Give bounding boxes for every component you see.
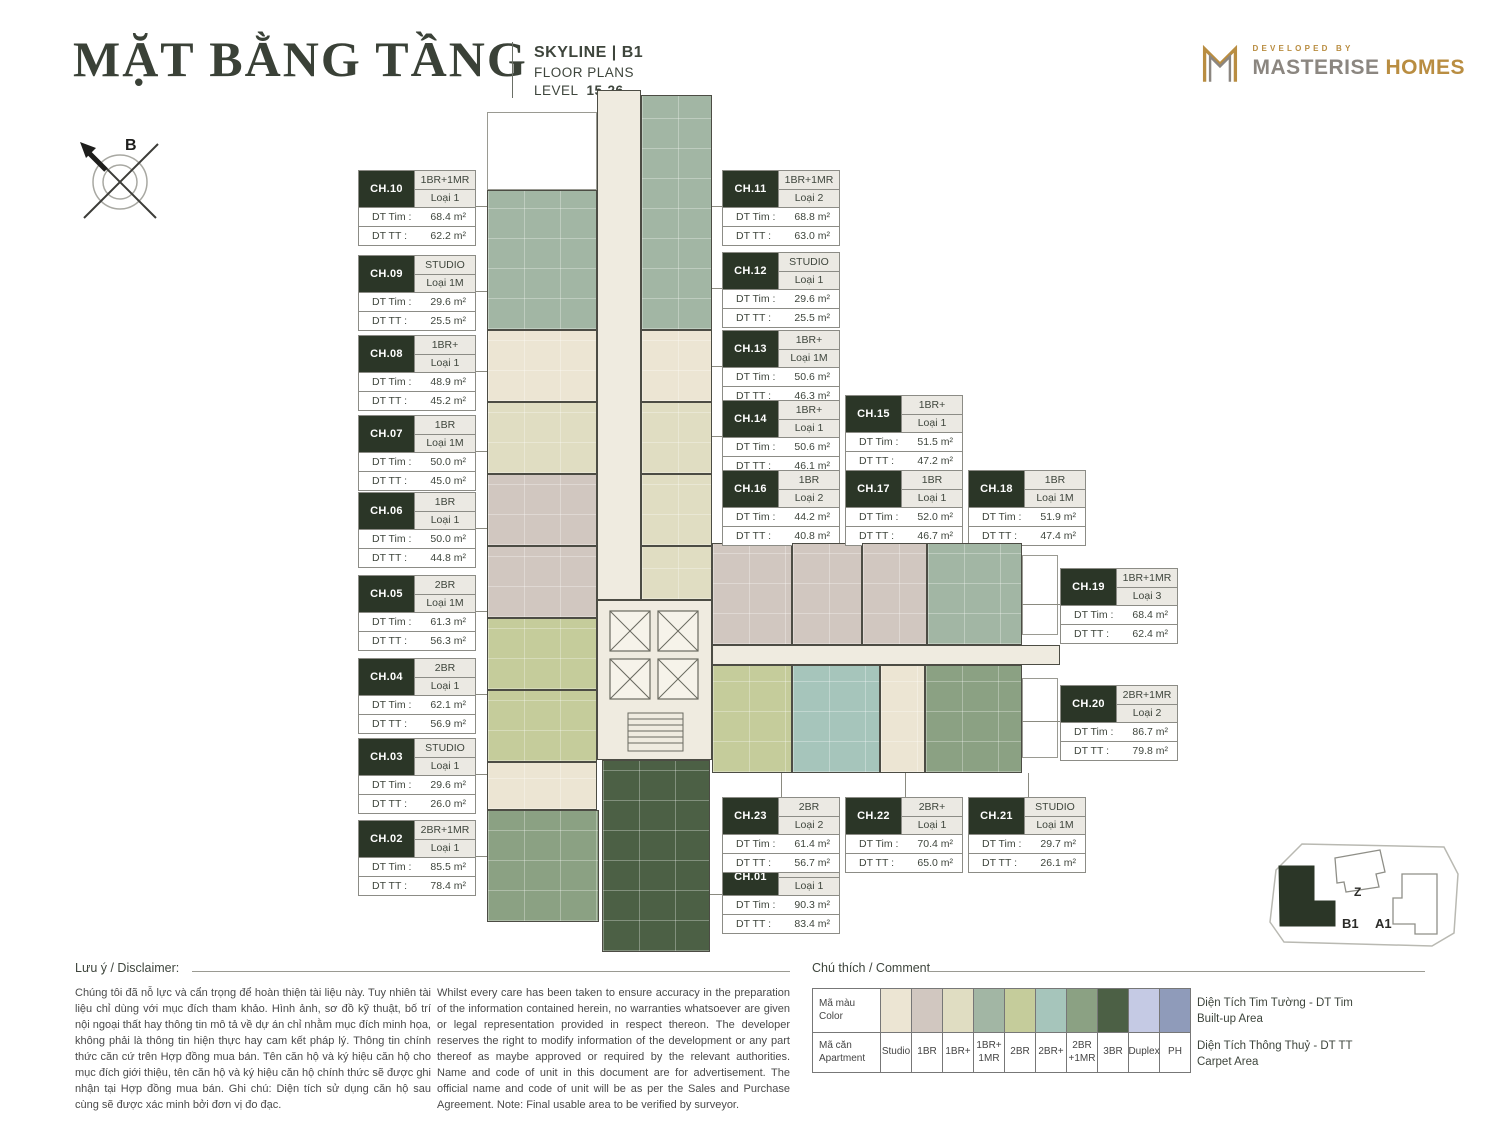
legend-swatch-2br+1mr [1067, 989, 1098, 1033]
unit-carpet-row: DT TT : 25.5 m² [359, 312, 475, 330]
dt-tim-value: 61.4 m² [794, 838, 830, 850]
legend-type-label: 2BR+ [1036, 1033, 1067, 1073]
dt-tim-value: 70.4 m² [917, 838, 953, 850]
connector-line [476, 206, 487, 207]
dt-tt-label: DT TT : [1074, 628, 1109, 640]
dt-tt-value: 40.8 m² [794, 530, 830, 542]
unit-builtup-row: DT Tim : 61.3 m² [359, 613, 475, 632]
dt-tim-label: DT Tim : [372, 211, 411, 223]
dt-tim-value: 29.6 m² [794, 293, 830, 305]
unit-type: 1BR+ [779, 401, 839, 420]
legend-note-builtup-vi: Diện Tích Tim Tường - DT Tim [1197, 995, 1457, 1011]
legend-type-label: Duplex [1129, 1033, 1160, 1073]
dt-tt-value: 25.5 m² [794, 312, 830, 324]
unit-box-header: CH.12 STUDIO Loại 1 [723, 253, 839, 290]
dt-tt-label: DT TT : [372, 635, 407, 647]
balcony-right-1 [1022, 555, 1058, 635]
dt-tim-value: 68.4 m² [430, 211, 466, 223]
dt-tt-label: DT TT : [982, 857, 1017, 869]
dt-tt-value: 44.8 m² [430, 552, 466, 564]
legend-type-label: 2BR +1MR [1067, 1033, 1098, 1073]
legend-heading: Chú thích / Comment [812, 961, 930, 975]
dt-tim-value: 29.6 m² [430, 296, 466, 308]
dt-tim-value: 68.4 m² [1132, 609, 1168, 621]
plan-unit-ch16 [712, 543, 792, 645]
unit-type-cell: 2BR+ Loại 1 [901, 798, 962, 834]
unit-type-cell: 1BR+ Loại 1 [414, 336, 475, 372]
plan-unit-ch04 [487, 690, 597, 762]
disclaimer-rule [192, 971, 790, 972]
legend-type-label: PH [1160, 1033, 1191, 1073]
unit-box-header: CH.18 1BR Loại 1M [969, 471, 1085, 508]
dt-tt-label: DT TT : [736, 857, 771, 869]
connector-line [1022, 604, 1060, 605]
unit-variant: Loại 1M [1025, 817, 1085, 835]
dt-tim-label: DT Tim : [859, 838, 898, 850]
unit-builtup-row: DT Tim : 50.0 m² [359, 530, 475, 549]
unit-type-cell: STUDIO Loại 1M [1024, 798, 1085, 834]
unit-code: CH.22 [846, 798, 901, 834]
unit-code: CH.06 [359, 493, 414, 529]
unit-variant: Loại 1 [779, 420, 839, 438]
disclaimer-text-en: Whilst every care has been taken to ensu… [437, 986, 790, 1114]
unit-carpet-row: DT TT : 26.0 m² [359, 795, 475, 813]
plan-unit-ch03 [487, 762, 597, 810]
dt-tt-label: DT TT : [372, 880, 407, 892]
connector-line [712, 366, 722, 367]
key-plan: B1 Z A1 [1262, 834, 1467, 956]
dt-tim-value: 52.0 m² [917, 511, 953, 523]
unit-type-cell: 1BR+1MR Loại 1 [414, 171, 475, 207]
unit-type-cell: 1BR+ Loại 1 [901, 396, 962, 432]
legend-type-label: 2BR [1005, 1033, 1036, 1073]
plan-unit-ch23 [712, 665, 792, 773]
connector-line [476, 694, 487, 695]
dt-tt-label: DT TT : [859, 455, 894, 467]
legend-type-label: 1BR+ [943, 1033, 974, 1073]
connector-line [712, 288, 722, 289]
unit-builtup-row: DT Tim : 51.5 m² [846, 433, 962, 452]
unit-carpet-row: DT TT : 45.0 m² [359, 472, 475, 490]
unit-type-cell: 1BR Loại 1M [1024, 471, 1085, 507]
unit-builtup-row: DT Tim : 50.0 m² [359, 453, 475, 472]
unit-box-header: CH.11 1BR+1MR Loại 2 [723, 171, 839, 208]
legend-swatch-2br [1005, 989, 1036, 1033]
unit-code: CH.18 [969, 471, 1024, 507]
unit-builtup-row: DT Tim : 70.4 m² [846, 835, 962, 854]
unit-variant: Loại 2 [779, 817, 839, 835]
dt-tim-value: 50.0 m² [430, 456, 466, 468]
dt-tim-label: DT Tim : [372, 616, 411, 628]
unit-type: STUDIO [779, 253, 839, 272]
plan-unit-ch10 [487, 190, 597, 330]
legend-note-carpet-vi: Diện Tích Thông Thuỷ - DT TT [1197, 1038, 1457, 1054]
connector-line [712, 206, 722, 207]
unit-type-cell: 1BR Loại 1 [414, 493, 475, 529]
unit-type: 1BR [415, 493, 475, 512]
unit-builtup-row: DT Tim : 62.1 m² [359, 696, 475, 715]
dt-tim-value: 85.5 m² [430, 861, 466, 873]
unit-type-cell: 2BR Loại 1M [414, 576, 475, 612]
unit-code: CH.13 [723, 331, 778, 367]
key-plan-z-label: Z [1354, 885, 1361, 899]
unit-builtup-row: DT Tim : 51.9 m² [969, 508, 1085, 527]
unit-carpet-row: DT TT : 26.1 m² [969, 854, 1085, 872]
dt-tim-label: DT Tim : [736, 371, 775, 383]
legend-swatch-1br+1mr [974, 989, 1005, 1033]
unit-type-cell: 2BR Loại 2 [778, 798, 839, 834]
unit-type-cell: 1BR Loại 1 [901, 471, 962, 507]
dt-tt-value: 56.7 m² [794, 857, 830, 869]
unit-carpet-row: DT TT : 56.7 m² [723, 854, 839, 872]
dt-tim-label: DT Tim : [736, 441, 775, 453]
dt-tt-value: 26.0 m² [430, 798, 466, 810]
unit-box-header: CH.17 1BR Loại 1 [846, 471, 962, 508]
plan-unit-ch19 [927, 543, 1022, 645]
unit-code: CH.04 [359, 659, 414, 695]
floor-plan: CH.01 3BR Loại 1 DT Tim : 90.3 m² DT TT … [0, 0, 1500, 1125]
plan-unit-ch12 [641, 330, 712, 402]
dt-tim-label: DT Tim : [372, 533, 411, 545]
plan-unit-ch14 [641, 474, 712, 546]
dt-tt-label: DT TT : [372, 718, 407, 730]
connector-line [1028, 773, 1029, 797]
unit-builtup-row: DT Tim : 61.4 m² [723, 835, 839, 854]
dt-tim-label: DT Tim : [736, 838, 775, 850]
unit-builtup-row: DT Tim : 48.9 m² [359, 373, 475, 392]
unit-code: CH.12 [723, 253, 778, 289]
unit-box-header: CH.09 STUDIO Loại 1M [359, 256, 475, 293]
legend-type-label: 3BR [1098, 1033, 1129, 1073]
unit-box-header: CH.19 1BR+1MR Loại 3 [1061, 569, 1177, 606]
unit-code: CH.10 [359, 171, 414, 207]
dt-tt-label: DT TT : [372, 475, 407, 487]
dt-tim-value: 29.7 m² [1040, 838, 1076, 850]
unit-box-header: CH.21 STUDIO Loại 1M [969, 798, 1085, 835]
dt-tim-value: 62.1 m² [430, 699, 466, 711]
legend-note-builtup-en: Built-up Area [1197, 1011, 1457, 1027]
unit-type-cell: 1BR Loại 1M [414, 416, 475, 452]
unit-builtup-row: DT Tim : 50.6 m² [723, 438, 839, 457]
unit-type-cell: STUDIO Loại 1 [778, 253, 839, 289]
dt-tim-label: DT Tim : [1074, 609, 1113, 621]
unit-label-box-ch12: CH.12 STUDIO Loại 1 DT Tim : 29.6 m² DT … [722, 252, 840, 328]
unit-variant: Loại 3 [1117, 588, 1177, 606]
unit-carpet-row: DT TT : 56.9 m² [359, 715, 475, 733]
unit-code: CH.19 [1061, 569, 1116, 605]
plan-unit-ch02 [487, 810, 599, 922]
dt-tt-label: DT TT : [736, 530, 771, 542]
dt-tim-label: DT Tim : [859, 511, 898, 523]
dt-tim-value: 50.6 m² [794, 371, 830, 383]
unit-variant: Loại 1M [1025, 490, 1085, 508]
unit-code: CH.08 [359, 336, 414, 372]
unit-label-box-ch03: CH.03 STUDIO Loại 1 DT Tim : 29.6 m² DT … [358, 738, 476, 814]
unit-builtup-row: DT Tim : 86.7 m² [1061, 723, 1177, 742]
unit-builtup-row: DT Tim : 29.7 m² [969, 835, 1085, 854]
unit-variant: Loại 2 [779, 490, 839, 508]
unit-builtup-row: DT Tim : 50.6 m² [723, 368, 839, 387]
unit-type: 1BR [415, 416, 475, 435]
dt-tim-label: DT Tim : [736, 211, 775, 223]
dt-tim-label: DT Tim : [372, 376, 411, 388]
dt-tim-value: 50.0 m² [430, 533, 466, 545]
unit-label-box-ch23: CH.23 2BR Loại 2 DT Tim : 61.4 m² DT TT … [722, 797, 840, 873]
unit-builtup-row: DT Tim : 68.8 m² [723, 208, 839, 227]
unit-variant: Loại 1M [415, 595, 475, 613]
unit-type-cell: 2BR+1MR Loại 2 [1116, 686, 1177, 722]
floorplan-page: MẶT BẰNG TẦNG SKYLINE | B1 FLOOR PLANS L… [0, 0, 1500, 1125]
unit-variant: Loại 1 [415, 840, 475, 858]
dt-tim-label: DT Tim : [1074, 726, 1113, 738]
unit-carpet-row: DT TT : 65.0 m² [846, 854, 962, 872]
dt-tt-label: DT TT : [372, 315, 407, 327]
unit-type-cell: STUDIO Loại 1 [414, 739, 475, 775]
dt-tim-label: DT Tim : [372, 699, 411, 711]
dt-tt-label: DT TT : [859, 530, 894, 542]
unit-type: 2BR [415, 659, 475, 678]
unit-label-box-ch14: CH.14 1BR+ Loại 1 DT Tim : 50.6 m² DT TT… [722, 400, 840, 476]
dt-tim-value: 61.3 m² [430, 616, 466, 628]
unit-label-box-ch11: CH.11 1BR+1MR Loại 2 DT Tim : 68.8 m² DT… [722, 170, 840, 246]
connector-line [781, 773, 782, 797]
unit-carpet-row: DT TT : 63.0 m² [723, 227, 839, 245]
dt-tim-label: DT Tim : [982, 511, 1021, 523]
legend-note-carpet: Diện Tích Thông Thuỷ - DT TT Carpet Area [1197, 1038, 1457, 1070]
unit-builtup-row: DT Tim : 29.6 m² [359, 776, 475, 795]
unit-type: 1BR+1MR [415, 171, 475, 190]
unit-builtup-row: DT Tim : 52.0 m² [846, 508, 962, 527]
unit-label-box-ch20: CH.20 2BR+1MR Loại 2 DT Tim : 86.7 m² DT… [1060, 685, 1178, 761]
dt-tt-value: 46.7 m² [917, 530, 953, 542]
unit-box-header: CH.02 2BR+1MR Loại 1 [359, 821, 475, 858]
plan-unit-ch18 [862, 543, 927, 645]
unit-carpet-row: DT TT : 79.8 m² [1061, 742, 1177, 760]
connector-line [476, 856, 487, 857]
unit-carpet-row: DT TT : 25.5 m² [723, 309, 839, 327]
plan-unit-ch15 [641, 546, 712, 600]
dt-tt-value: 62.2 m² [430, 230, 466, 242]
unit-box-header: CH.16 1BR Loại 2 [723, 471, 839, 508]
unit-label-box-ch08: CH.08 1BR+ Loại 1 DT Tim : 48.9 m² DT TT… [358, 335, 476, 411]
connector-line [476, 774, 487, 775]
unit-box-header: CH.10 1BR+1MR Loại 1 [359, 171, 475, 208]
unit-box-header: CH.04 2BR Loại 1 [359, 659, 475, 696]
unit-code: CH.14 [723, 401, 778, 437]
unit-type-cell: 2BR+1MR Loại 1 [414, 821, 475, 857]
plan-unit-ch21 [880, 665, 925, 773]
unit-variant: Loại 1 [415, 190, 475, 208]
unit-box-header: CH.22 2BR+ Loại 1 [846, 798, 962, 835]
elevator-core [597, 600, 712, 760]
dt-tim-label: DT Tim : [372, 779, 411, 791]
legend-note-builtup: Diện Tích Tim Tường - DT Tim Built-up Ar… [1197, 995, 1457, 1027]
unit-box-header: CH.06 1BR Loại 1 [359, 493, 475, 530]
unit-type: 2BR+1MR [415, 821, 475, 840]
unit-carpet-row: DT TT : 78.4 m² [359, 877, 475, 895]
dt-tt-label: DT TT : [372, 230, 407, 242]
unit-box-header: CH.03 STUDIO Loại 1 [359, 739, 475, 776]
connector-line [476, 611, 487, 612]
unit-code: CH.16 [723, 471, 778, 507]
unit-type: STUDIO [1025, 798, 1085, 817]
unit-code: CH.20 [1061, 686, 1116, 722]
dt-tt-label: DT TT : [736, 312, 771, 324]
unit-code: CH.09 [359, 256, 414, 292]
unit-variant: Loại 1 [415, 678, 475, 696]
unit-label-box-ch05: CH.05 2BR Loại 1M DT Tim : 61.3 m² DT TT… [358, 575, 476, 651]
dt-tt-label: DT TT : [1074, 745, 1109, 757]
dt-tt-value: 62.4 m² [1132, 628, 1168, 640]
unit-box-header: CH.15 1BR+ Loại 1 [846, 396, 962, 433]
unit-box-header: CH.20 2BR+1MR Loại 2 [1061, 686, 1177, 723]
dt-tt-value: 25.5 m² [430, 315, 466, 327]
connector-line [712, 436, 722, 437]
dt-tt-value: 83.4 m² [794, 918, 830, 930]
dt-tt-value: 65.0 m² [917, 857, 953, 869]
unit-code: CH.02 [359, 821, 414, 857]
connector-line [476, 528, 487, 529]
unit-label-box-ch04: CH.04 2BR Loại 1 DT Tim : 62.1 m² DT TT … [358, 658, 476, 734]
plan-unit-ch11 [641, 95, 712, 330]
unit-label-box-ch07: CH.07 1BR Loại 1M DT Tim : 50.0 m² DT TT… [358, 415, 476, 491]
unit-carpet-row: DT TT : 44.8 m² [359, 549, 475, 567]
connector-line [476, 291, 487, 292]
dt-tim-value: 44.2 m² [794, 511, 830, 523]
unit-label-box-ch02: CH.02 2BR+1MR Loại 1 DT Tim : 85.5 m² DT… [358, 820, 476, 896]
dt-tt-value: 63.0 m² [794, 230, 830, 242]
dt-tt-value: 47.4 m² [1040, 530, 1076, 542]
legend-note-carpet-en: Carpet Area [1197, 1054, 1457, 1070]
unit-box-header: CH.08 1BR+ Loại 1 [359, 336, 475, 373]
legend-swatch-1br [912, 989, 943, 1033]
dt-tim-label: DT Tim : [736, 899, 775, 911]
unit-builtup-row: DT Tim : 29.6 m² [359, 293, 475, 312]
unit-label-box-ch22: CH.22 2BR+ Loại 1 DT Tim : 70.4 m² DT TT… [845, 797, 963, 873]
legend-type-label: 1BR+ 1MR [974, 1033, 1005, 1073]
unit-type: 1BR+ [779, 331, 839, 350]
unit-label-box-ch06: CH.06 1BR Loại 1 DT Tim : 50.0 m² DT TT … [358, 492, 476, 568]
unit-code: CH.21 [969, 798, 1024, 834]
unit-type-cell: 1BR+1MR Loại 3 [1116, 569, 1177, 605]
unit-label-box-ch10: CH.10 1BR+1MR Loại 1 DT Tim : 68.4 m² DT… [358, 170, 476, 246]
connector-line [476, 451, 487, 452]
unit-box-header: CH.23 2BR Loại 2 [723, 798, 839, 835]
dt-tt-value: 26.1 m² [1040, 857, 1076, 869]
unit-variant: Loại 1 [779, 272, 839, 290]
unit-builtup-row: DT Tim : 68.4 m² [359, 208, 475, 227]
legend-type-label: 1BR [912, 1033, 943, 1073]
unit-variant: Loại 1 [902, 490, 962, 508]
unit-type-cell: 1BR+ Loại 1 [778, 401, 839, 437]
plan-unit-ch01 [602, 760, 710, 952]
unit-type: 1BR+ [902, 396, 962, 415]
unit-label-box-ch21: CH.21 STUDIO Loại 1M DT Tim : 29.7 m² DT… [968, 797, 1086, 873]
unit-builtup-row: DT Tim : 29.6 m² [723, 290, 839, 309]
dt-tt-label: DT TT : [372, 798, 407, 810]
unit-variant: Loại 2 [779, 190, 839, 208]
plan-unit-ch05 [487, 618, 597, 690]
unit-type: 2BR [415, 576, 475, 595]
dt-tim-value: 86.7 m² [1132, 726, 1168, 738]
dt-tim-label: DT Tim : [372, 861, 411, 873]
legend-swatch-2br+ [1036, 989, 1067, 1033]
unit-type-cell: 2BR Loại 1 [414, 659, 475, 695]
dt-tim-value: 48.9 m² [430, 376, 466, 388]
unit-variant: Loại 1 [902, 415, 962, 433]
legend-rule [928, 971, 1425, 972]
dt-tt-value: 56.3 m² [430, 635, 466, 647]
unit-variant: Loại 1 [415, 355, 475, 373]
unit-code: CH.07 [359, 416, 414, 452]
unit-label-box-ch13: CH.13 1BR+ Loại 1M DT Tim : 50.6 m² DT T… [722, 330, 840, 406]
connector-line [476, 371, 487, 372]
unit-type-cell: 1BR Loại 2 [778, 471, 839, 507]
unit-label-box-ch15: CH.15 1BR+ Loại 1 DT Tim : 51.5 m² DT TT… [845, 395, 963, 471]
dt-tim-label: DT Tim : [736, 511, 775, 523]
dt-tt-label: DT TT : [736, 918, 771, 930]
dt-tim-label: DT Tim : [372, 296, 411, 308]
dt-tt-value: 45.0 m² [430, 475, 466, 487]
dt-tim-label: DT Tim : [859, 436, 898, 448]
plan-unit-ch13 [641, 402, 712, 474]
connector-line [1022, 721, 1060, 722]
unit-carpet-row: DT TT : 56.3 m² [359, 632, 475, 650]
dt-tt-value: 56.9 m² [430, 718, 466, 730]
unit-box-header: CH.05 2BR Loại 1M [359, 576, 475, 613]
plan-unit-ch17 [792, 543, 862, 645]
legend-swatch-1br+ [943, 989, 974, 1033]
dt-tim-label: DT Tim : [982, 838, 1021, 850]
disclaimer-heading: Lưu ý / Disclaimer: [75, 961, 179, 975]
dt-tim-label: DT Tim : [372, 456, 411, 468]
plan-unit-ch22 [792, 665, 880, 773]
dt-tim-value: 29.6 m² [430, 779, 466, 791]
unit-type: 1BR [779, 471, 839, 490]
unit-type: 1BR+ [415, 336, 475, 355]
unit-variant: Loại 2 [1117, 705, 1177, 723]
unit-carpet-row: DT TT : 47.2 m² [846, 452, 962, 470]
plan-unit-ch08 [487, 402, 597, 474]
unit-code: CH.05 [359, 576, 414, 612]
legend-swatch-ph [1160, 989, 1191, 1033]
unit-label-box-ch17: CH.17 1BR Loại 1 DT Tim : 52.0 m² DT TT … [845, 470, 963, 546]
plan-unit-ch07 [487, 474, 597, 546]
key-plan-a1-label: A1 [1375, 916, 1392, 931]
unit-type: 1BR+1MR [779, 171, 839, 190]
unit-code: CH.15 [846, 396, 901, 432]
connector-line [710, 894, 722, 895]
legend-color-row-label: Mã màu Color [813, 989, 881, 1033]
unit-code: CH.03 [359, 739, 414, 775]
elevator-core-icon [598, 601, 713, 761]
legend-type-label: Studio [881, 1033, 912, 1073]
unit-type: 1BR+1MR [1117, 569, 1177, 588]
corridor-vertical [597, 90, 641, 600]
unit-code: CH.23 [723, 798, 778, 834]
dt-tt-value: 79.8 m² [1132, 745, 1168, 757]
unit-builtup-row: DT Tim : 68.4 m² [1061, 606, 1177, 625]
dt-tt-value: 78.4 m² [430, 880, 466, 892]
unit-type: STUDIO [415, 256, 475, 275]
legend-swatch-duplex [1129, 989, 1160, 1033]
disclaimer-text-vi: Chúng tôi đã nỗ lực và cẩn trọng để hoàn… [75, 986, 431, 1114]
unit-box-header: CH.13 1BR+ Loại 1M [723, 331, 839, 368]
dt-tt-value: 47.2 m² [917, 455, 953, 467]
unit-type: STUDIO [415, 739, 475, 758]
legend-swatch-3br [1098, 989, 1129, 1033]
unit-variant: Loại 1 [902, 817, 962, 835]
